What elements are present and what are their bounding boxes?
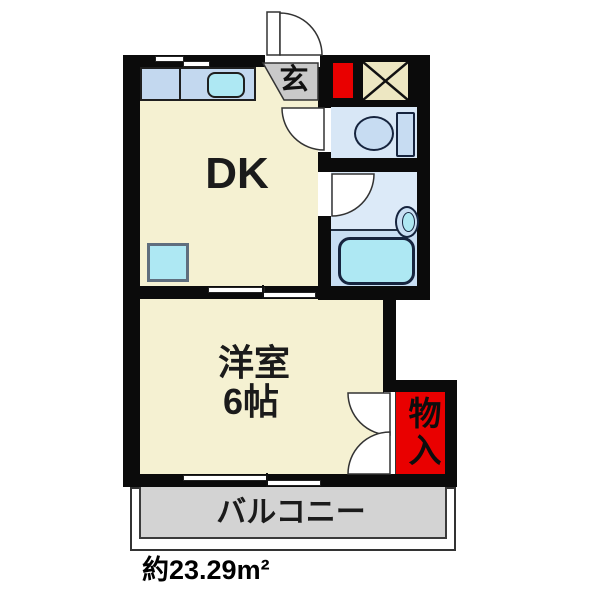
kitchen-window-pane2 — [183, 61, 210, 67]
genkan-label: 玄 — [277, 64, 311, 96]
dk-western-sliding-door — [208, 287, 265, 293]
bathtub — [338, 237, 415, 285]
counter-divider — [179, 69, 181, 99]
pipe-space — [333, 63, 353, 98]
dk-label: DK — [187, 151, 287, 197]
balcony-window — [183, 475, 268, 481]
toilet-door-opening — [318, 108, 331, 152]
storage-door-leaves — [383, 392, 396, 474]
toilet-bowl — [354, 116, 394, 151]
dk-counter-box — [147, 243, 189, 282]
kitchen-sink — [207, 72, 245, 98]
bath-door-opening — [318, 172, 331, 216]
balcony-label: バルコニー — [176, 497, 406, 529]
floor-plan: DK 玄 洋室 6帖 物入 バルコニー 約23.29m² — [0, 0, 600, 600]
toilet-tank — [396, 112, 415, 157]
western-room-label: 洋室 — [194, 344, 314, 382]
balcony-window-tick — [266, 473, 268, 487]
entrance-door-leaf — [267, 12, 280, 55]
kitchen-window — [155, 56, 184, 62]
balcony-window-pane2 — [267, 480, 321, 486]
washing-machine-pan — [363, 62, 408, 100]
western-room-size-label: 6帖 — [191, 383, 311, 421]
sliding-door-tick — [262, 285, 264, 299]
storage-label: 物入 — [402, 392, 442, 474]
total-area-label: 約23.29m² — [142, 555, 362, 585]
dk-western-sliding-door-pane2 — [263, 292, 316, 298]
wall-western-right — [383, 286, 396, 392]
wall-storage-right — [445, 380, 457, 487]
washing-machine-cross-icon — [363, 62, 408, 100]
entrance-door-swing — [280, 13, 322, 55]
washbasin-bowl — [402, 212, 415, 232]
wall-left — [123, 55, 140, 487]
